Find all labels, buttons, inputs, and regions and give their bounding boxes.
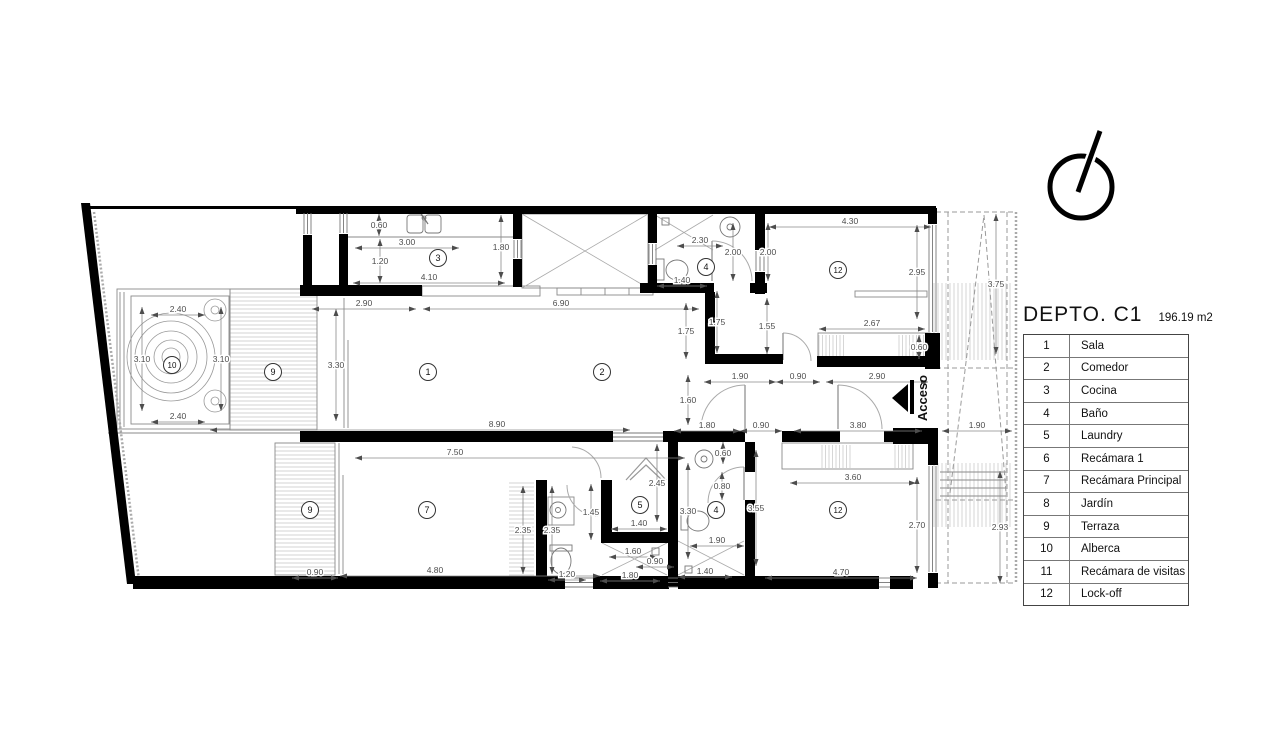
dimension-arrow — [636, 565, 643, 570]
dimension-arrow — [765, 298, 770, 305]
room-bubble-number: 10 — [168, 361, 177, 370]
dimension-arrow — [499, 215, 504, 222]
toilet-tank — [656, 259, 664, 280]
dimension-arrow — [198, 313, 205, 318]
dimension-label: 2.35 — [515, 525, 532, 535]
dimension-arrow — [737, 544, 744, 549]
room-number-cell: 7 — [1024, 471, 1070, 493]
room-bubble-number: 7 — [424, 505, 429, 515]
dimension-label: 1.90 — [969, 420, 986, 430]
wall-segment — [817, 356, 940, 367]
dimension-arrow — [452, 246, 459, 251]
dimension-label: 4.70 — [833, 567, 850, 577]
legend-row: 9 Terraza — [1024, 516, 1188, 539]
wall-segment — [928, 208, 937, 224]
dimension-arrow — [312, 307, 319, 312]
dimension-arrow — [377, 229, 382, 236]
wall-segment — [133, 576, 565, 589]
dimension-arrow — [677, 244, 684, 249]
dimension-label: 0.90 — [753, 420, 770, 430]
dimension-arrow — [917, 335, 922, 342]
north-indicator-icon — [1050, 127, 1112, 218]
dimension-label: 1.55 — [759, 321, 776, 331]
dimension-arrow — [918, 327, 925, 332]
room-name-cell: Recámara Principal — [1070, 475, 1188, 487]
dimension-arrow — [731, 274, 736, 281]
dimension-arrow — [660, 527, 667, 532]
room-number-cell: 5 — [1024, 425, 1070, 447]
door-swing-arc — [572, 447, 601, 478]
room-number-cell: 10 — [1024, 538, 1070, 560]
legend-row: 3 Cocina — [1024, 380, 1188, 403]
dimension-arrow — [684, 352, 689, 359]
legend-row: 4 Baño — [1024, 403, 1188, 426]
wall-segment — [601, 532, 673, 543]
legend-row: 10 Alberca — [1024, 538, 1188, 561]
room-bubble-number: 9 — [307, 505, 312, 515]
room-number-cell: 3 — [1024, 380, 1070, 402]
dimension-arrow — [589, 484, 594, 491]
dimension-arrow — [219, 404, 224, 411]
dimension-arrow — [720, 493, 725, 500]
dashed-line — [950, 215, 984, 493]
outline-rect — [782, 443, 913, 469]
dimension-label: 0.60 — [715, 448, 732, 458]
dimension-label: 3.60 — [845, 472, 862, 482]
wall-segment — [88, 206, 296, 209]
door-swing-arc — [783, 333, 811, 361]
legend-row: 6 Recámara 1 — [1024, 448, 1188, 471]
dimension-label: 2.40 — [170, 411, 187, 421]
dimension-arrow — [151, 313, 158, 318]
thinline-layer — [108, 214, 1006, 575]
dimension-label: 1.60 — [625, 546, 642, 556]
dimension-label: 1.40 — [631, 518, 648, 528]
dimension-arrow — [766, 223, 771, 230]
dimension-arrow — [655, 515, 660, 522]
dimension-label: 2.95 — [909, 267, 926, 277]
dimension-arrow — [721, 457, 726, 464]
access-triangle-icon — [892, 384, 908, 412]
dimension-label: 1.80 — [622, 570, 639, 580]
dimension-label: 1.80 — [493, 242, 510, 252]
outline-rect — [855, 291, 927, 297]
dimension-label: 1.45 — [583, 507, 600, 517]
dimension-arrow — [423, 307, 430, 312]
dimension-label: 1.90 — [709, 535, 726, 545]
wall-segment — [339, 234, 348, 286]
dimension-arrow — [715, 346, 720, 353]
dimension-label: 3.10 — [213, 354, 230, 364]
room-number-cell: 9 — [1024, 516, 1070, 538]
dimension-arrow — [409, 307, 416, 312]
dimension-label: 1.60 — [680, 395, 697, 405]
dimension-label: 1.80 — [699, 420, 716, 430]
dimension-label: 7.50 — [447, 447, 464, 457]
legend-row: 2 Comedor — [1024, 358, 1188, 381]
dimension-arrow — [686, 375, 691, 382]
dimension-arrow — [915, 566, 920, 573]
legend-row: 8 Jardín — [1024, 493, 1188, 516]
dimension-arrow — [686, 418, 691, 425]
dimension-arrow — [353, 281, 360, 286]
wall-segment — [755, 272, 765, 294]
room-name-cell: Recámara 1 — [1070, 453, 1188, 465]
wall-segment — [782, 431, 840, 442]
dimension-arrow — [140, 404, 145, 411]
dimension-arrow — [609, 555, 616, 560]
dimension-arrow — [589, 533, 594, 540]
dimension-label: 1.20 — [559, 569, 576, 579]
wall-segment — [705, 354, 783, 364]
wall-segment — [513, 213, 522, 239]
dimension-label: 2.93 — [992, 522, 1009, 532]
wall-segment — [300, 285, 422, 296]
dimension-arrow — [942, 429, 949, 434]
room-number-cell: 6 — [1024, 448, 1070, 470]
door-swing-layer — [567, 241, 882, 516]
legend-row: 7 Recámara Principal — [1024, 471, 1188, 494]
dimension-label: 1.40 — [674, 275, 691, 285]
dimension-label: 3.80 — [850, 420, 867, 430]
room-bubble-number: 12 — [834, 266, 843, 275]
laundry-chevron — [626, 458, 666, 480]
dimension-arrow — [678, 456, 685, 461]
dimension-label: 6.90 — [553, 298, 570, 308]
room-bubble-number: 5 — [637, 500, 642, 510]
room-name-cell: Sala — [1070, 340, 1188, 352]
wall-segment — [928, 443, 938, 465]
dimension-label: 4.80 — [427, 565, 444, 575]
dimension-label: 3.30 — [328, 360, 345, 370]
wall-segment — [668, 442, 678, 587]
wall-segment — [705, 292, 715, 364]
room-bubble-number: 4 — [713, 505, 718, 515]
wall-segment — [648, 213, 657, 243]
dimension-arrow — [994, 214, 999, 221]
room-bubble-number: 3 — [435, 253, 440, 263]
dimension-label: 0.60 — [911, 342, 928, 352]
kitchen-sink-bowl — [407, 215, 423, 233]
dimension-label: 3.10 — [134, 354, 151, 364]
boundary-marker-line — [94, 212, 139, 580]
dimension-arrow — [716, 244, 723, 249]
property-line-wall — [81, 203, 136, 584]
room-bubble-number: 1 — [425, 367, 430, 377]
room-name-cell: Terraza — [1070, 521, 1188, 533]
wall-segment — [513, 259, 522, 287]
dimension-label: 1.40 — [697, 566, 714, 576]
legend-panel: DEPTO. C1 196.19 m2 1 Sala 2 Comedor 3 C… — [1023, 303, 1189, 606]
dimension-label: 3.00 — [399, 237, 416, 247]
dimension-label: 2.30 — [692, 235, 709, 245]
dimension-arrow — [765, 347, 770, 354]
legend-row: 12 Lock-off — [1024, 584, 1188, 606]
dimension-arrow — [623, 428, 630, 433]
dimension-label: 0.90 — [790, 371, 807, 381]
dimension-label: 1.20 — [372, 256, 389, 266]
dimension-label: 3.55 — [748, 503, 765, 513]
wall-segment — [296, 206, 936, 214]
dimension-arrow — [655, 444, 660, 451]
dimension-label: 0.90 — [647, 556, 664, 566]
dimension-arrow — [611, 527, 618, 532]
wall-segment — [303, 235, 312, 287]
plan-area: 196.19 m2 — [1158, 312, 1212, 324]
sink-basin — [556, 508, 561, 513]
room-name-cell: Comedor — [1070, 362, 1188, 374]
room-bubble-number: 9 — [270, 367, 275, 377]
dimension-label: 2.40 — [170, 304, 187, 314]
wall-segment — [884, 431, 938, 442]
pool-corner-jet — [204, 390, 226, 412]
dimension-arrow — [819, 327, 826, 332]
room-bubble-number: 4 — [703, 262, 708, 272]
dimension-arrow — [998, 576, 1003, 583]
dimension-label: 0.90 — [307, 567, 324, 577]
dimension-arrow — [334, 414, 339, 421]
dimension-arrow — [915, 477, 920, 484]
wall-segment — [601, 480, 612, 540]
dimension-arrow — [692, 307, 699, 312]
wall-segment — [755, 213, 765, 250]
wall-segment — [928, 573, 938, 588]
room-name-cell: Lock-off — [1070, 588, 1188, 600]
dimension-arrow — [499, 272, 504, 279]
room-number-cell: 8 — [1024, 493, 1070, 515]
legend-table: 1 Sala 2 Comedor 3 Cocina 4 Baño — [1023, 334, 1189, 606]
dimension-arrow — [826, 380, 833, 385]
sink-basin — [550, 502, 566, 518]
dimension-arrow — [378, 276, 383, 283]
dimension-label: 2.70 — [909, 520, 926, 530]
room-name-cell: Baño — [1070, 408, 1188, 420]
dimension-arrow — [766, 274, 771, 281]
floor-plan-page: 0.603.001.204.101.802.906.902.403.103.10… — [0, 0, 1280, 743]
dimension-arrow — [776, 380, 783, 385]
dimension-arrow — [210, 428, 217, 433]
dimension-label: 2.45 — [649, 478, 666, 488]
dimension-arrow — [334, 309, 339, 316]
dimension-label: 1.75 — [709, 317, 726, 327]
dimension-arrow — [355, 246, 362, 251]
dimension-arrow — [550, 486, 555, 493]
room-number-cell: 4 — [1024, 403, 1070, 425]
dimension-arrow — [813, 380, 820, 385]
room-name-cell: Jardín — [1070, 498, 1188, 510]
dimension-label: 1.90 — [732, 371, 749, 381]
dimension-arrow — [686, 552, 691, 559]
dimension-arrow — [355, 456, 362, 461]
room-bubble-number: 12 — [834, 506, 843, 515]
dimension-arrow — [775, 429, 782, 434]
access-bar-icon — [910, 380, 914, 414]
legend-header: DEPTO. C1 196.19 m2 — [1023, 303, 1189, 327]
legend-row: 5 Laundry — [1024, 425, 1188, 448]
dimension-label: 2.90 — [869, 371, 886, 381]
dimension-arrow — [1005, 429, 1012, 434]
plan-title: DEPTO. C1 — [1023, 303, 1142, 327]
legend-row: 1 Sala — [1024, 335, 1188, 358]
dimension-arrow — [378, 239, 383, 246]
pool-corner-jet — [211, 397, 219, 405]
dimension-arrow — [521, 567, 526, 574]
dimension-arrow — [910, 576, 917, 581]
room-name-cell: Cocina — [1070, 385, 1188, 397]
dimension-arrow — [924, 225, 931, 230]
sink-basin — [720, 217, 740, 237]
dimension-arrow — [715, 291, 720, 298]
access-label: Acceso — [915, 375, 930, 421]
dimension-label: 0.60 — [371, 220, 388, 230]
dimension-label: 2.67 — [864, 318, 881, 328]
dimension-arrow — [140, 307, 145, 314]
dimension-label: 4.10 — [421, 272, 438, 282]
dimension-arrow — [915, 312, 920, 319]
dashed-line — [984, 215, 1006, 493]
dimension-arrow — [790, 481, 797, 486]
dimension-arrow — [684, 303, 689, 310]
dimension-arrow — [498, 281, 505, 286]
dimensions-layer: 0.603.001.204.101.802.906.902.403.103.10… — [134, 214, 1012, 584]
room-name-cell: Recámara de visitas — [1070, 566, 1188, 578]
room-name-cell: Laundry — [1070, 430, 1188, 442]
pool-corner-jet — [204, 299, 226, 321]
dimension-label: 1.75 — [678, 326, 695, 336]
room-number-cell: 12 — [1024, 584, 1070, 606]
room-number-cell: 11 — [1024, 561, 1070, 583]
legend-row: 11 Recámara de visitas — [1024, 561, 1188, 584]
dimension-arrow — [915, 225, 920, 232]
dimension-label: 3.75 — [988, 279, 1005, 289]
sink-basin — [695, 450, 713, 468]
dimension-label: 2.00 — [760, 247, 777, 257]
wall-segment — [663, 431, 745, 442]
dimension-arrow — [704, 380, 711, 385]
dimension-label: 2.35 — [544, 525, 561, 535]
room-bubble-number: 2 — [599, 367, 604, 377]
dimension-label: 8.90 — [489, 419, 506, 429]
dimension-arrow — [686, 463, 691, 470]
dimension-arrow — [769, 380, 776, 385]
dimension-label: 4.30 — [842, 216, 859, 226]
dimension-label: 3.30 — [680, 506, 697, 516]
room-number-cell: 1 — [1024, 335, 1070, 357]
room-number-cell: 2 — [1024, 358, 1070, 380]
pool-corner-jet — [211, 306, 219, 314]
dimension-label: 2.90 — [356, 298, 373, 308]
wall-segment — [300, 431, 613, 442]
dimension-label: 2.00 — [725, 247, 742, 257]
dimension-label: 0.80 — [714, 481, 731, 491]
room-name-cell: Alberca — [1070, 543, 1188, 555]
sink-basin — [701, 456, 707, 462]
